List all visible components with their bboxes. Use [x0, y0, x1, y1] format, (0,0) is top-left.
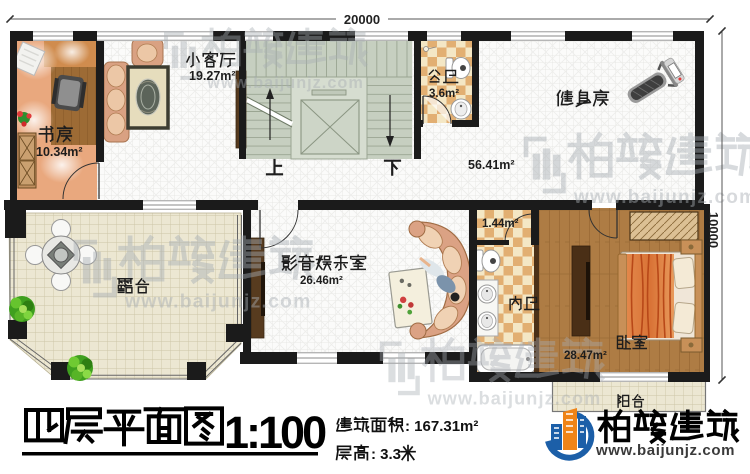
svg-text:19.27m²: 19.27m² — [189, 69, 236, 83]
svg-text:: 167.31m²: : 167.31m² — [405, 418, 478, 435]
svg-text:www.baijunjz.com: www.baijunjz.com — [427, 389, 602, 409]
svg-text:1:100: 1:100 — [224, 407, 326, 458]
svg-text:www.baijunjz.com: www.baijunjz.com — [124, 290, 312, 312]
svg-text:10000: 10000 — [706, 212, 721, 248]
svg-text:56.41m²: 56.41m² — [468, 158, 515, 172]
svg-text:www.baijunjz.com: www.baijunjz.com — [573, 187, 750, 208]
svg-text:1.44m²: 1.44m² — [482, 218, 519, 230]
svg-text:26.46m²: 26.46m² — [300, 275, 343, 287]
svg-text:3.6m²: 3.6m² — [429, 88, 459, 100]
svg-text:10.34m²: 10.34m² — [36, 145, 83, 159]
svg-text:www.baijunjz.com: www.baijunjz.com — [595, 442, 735, 459]
svg-text:28.47m²: 28.47m² — [564, 350, 607, 362]
svg-text:: 3.3: : 3.3 — [371, 446, 401, 463]
svg-text:20000: 20000 — [344, 12, 380, 27]
